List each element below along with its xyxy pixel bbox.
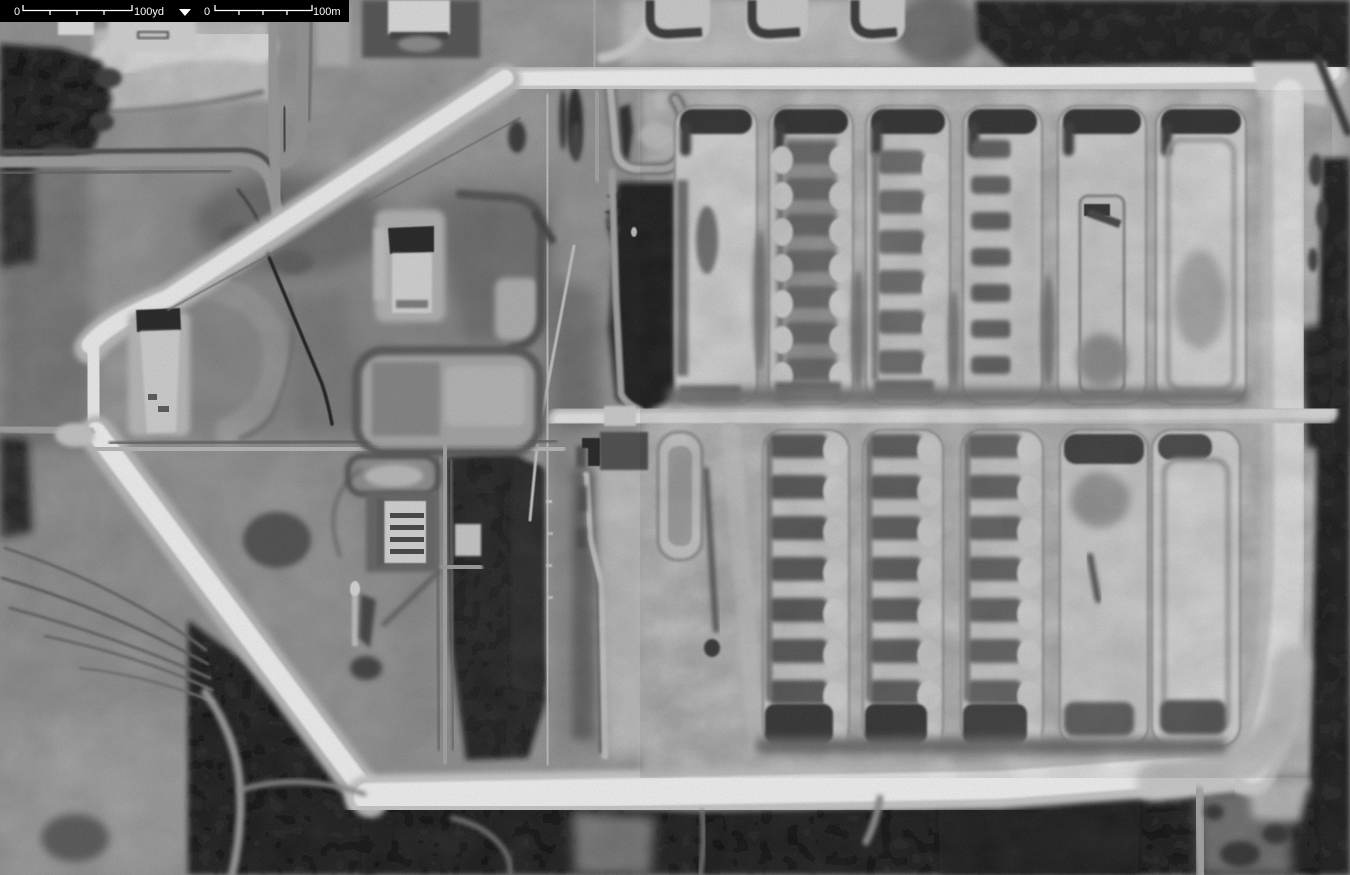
svg-text:100m: 100m — [313, 6, 341, 18]
svg-text:0: 0 — [204, 6, 210, 18]
svg-text:0: 0 — [14, 6, 20, 18]
svg-text:100yd: 100yd — [134, 6, 164, 18]
